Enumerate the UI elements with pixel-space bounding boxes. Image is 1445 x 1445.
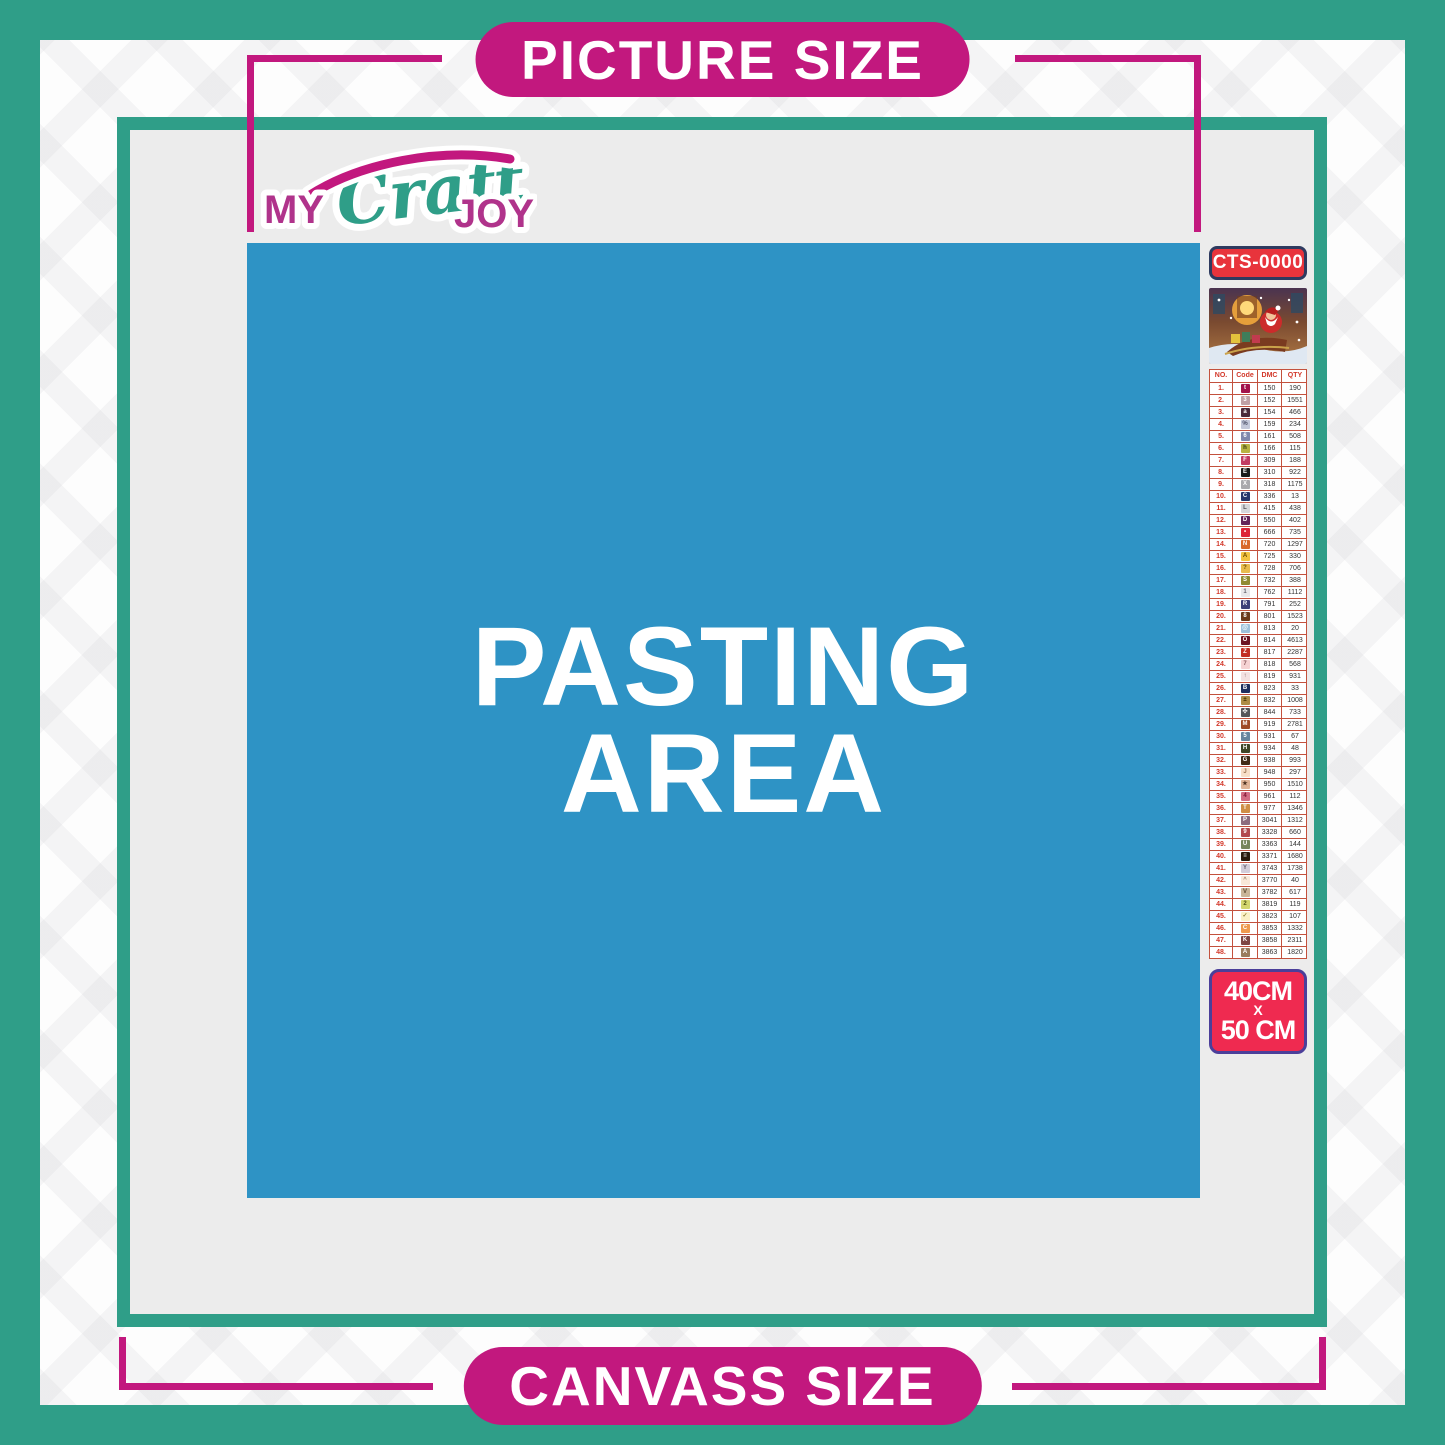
table-row: 24.7818568 (1210, 659, 1306, 671)
header-cell: NO. (1210, 370, 1233, 382)
color-swatch: 5 (1241, 732, 1250, 741)
cell-dmc: 150 (1258, 383, 1282, 394)
cell-qty: 2287 (1282, 647, 1308, 658)
cell-no: 36. (1210, 803, 1233, 814)
color-swatch: ✓ (1241, 912, 1250, 921)
table-row: 40.≡33711680 (1210, 851, 1306, 863)
cell-code: Z (1233, 647, 1258, 658)
picture-size-bracket-left (247, 55, 254, 232)
cell-dmc: 415 (1258, 503, 1282, 514)
cell-code: V (1233, 887, 1258, 898)
cell-code: h (1233, 443, 1258, 454)
table-row: 29.M9192781 (1210, 719, 1306, 731)
cell-qty: 330 (1282, 551, 1308, 562)
cell-dmc: 3853 (1258, 923, 1282, 934)
table-row: 27.±8321008 (1210, 695, 1306, 707)
cell-no: 1. (1210, 383, 1233, 394)
table-row: 14.N7201297 (1210, 539, 1306, 551)
pasting-area-label: PASTING AREA (472, 614, 976, 827)
cell-no: 12. (1210, 515, 1233, 526)
canvass-size-bracket-dash-left (119, 1383, 433, 1390)
cell-no: 9. (1210, 479, 1233, 490)
color-swatch: J (1241, 768, 1250, 777)
cell-code: E (1233, 467, 1258, 478)
color-swatch: 9 (1241, 828, 1250, 837)
color-swatch: C (1241, 492, 1250, 501)
color-swatch: a (1241, 408, 1250, 417)
cell-no: 3. (1210, 407, 1233, 418)
cell-code: a (1233, 407, 1258, 418)
color-swatch: L (1241, 504, 1250, 513)
logo-word-joy: JOY (454, 192, 534, 236)
cell-dmc: 550 (1258, 515, 1282, 526)
table-row: 21.@81320 (1210, 623, 1306, 635)
color-swatch: 2 (1241, 900, 1250, 909)
cell-qty: 660 (1282, 827, 1308, 838)
color-swatch: B (1241, 684, 1250, 693)
table-row: 8.E310922 (1210, 467, 1306, 479)
cell-qty: 48 (1282, 743, 1308, 754)
cell-no: 27. (1210, 695, 1233, 706)
table-row: 16.?728706 (1210, 563, 1306, 575)
color-swatch: E (1241, 468, 1250, 477)
cell-dmc: 720 (1258, 539, 1282, 550)
cell-no: 16. (1210, 563, 1233, 574)
table-row: 42.^377040 (1210, 875, 1306, 887)
cell-qty: 1112 (1282, 587, 1308, 598)
cell-dmc: 309 (1258, 455, 1282, 466)
cell-code: 9 (1233, 827, 1258, 838)
cell-code: J (1233, 767, 1258, 778)
cell-no: 46. (1210, 923, 1233, 934)
cell-dmc: 318 (1258, 479, 1282, 490)
color-swatch: V (1241, 888, 1250, 897)
cell-no: 33. (1210, 767, 1233, 778)
table-row: 20.88011523 (1210, 611, 1306, 623)
color-swatch: 7 (1241, 660, 1250, 669)
table-row: 2.31521551 (1210, 395, 1306, 407)
cell-code: H (1233, 743, 1258, 754)
cell-dmc: 3363 (1258, 839, 1282, 850)
cell-code: A (1233, 551, 1258, 562)
picture-size-bracket-dash-right (1015, 55, 1201, 62)
cell-dmc: 166 (1258, 443, 1282, 454)
cell-code: 4 (1233, 791, 1258, 802)
cell-qty: 107 (1282, 911, 1308, 922)
cell-qty: 1523 (1282, 611, 1308, 622)
cell-no: 4. (1210, 419, 1233, 430)
cell-qty: 1346 (1282, 803, 1308, 814)
color-swatch: S (1241, 576, 1250, 585)
cell-qty: 115 (1282, 443, 1308, 454)
cell-code: L (1233, 503, 1258, 514)
table-row: 25.↑819931 (1210, 671, 1306, 683)
table-row: 32.G938993 (1210, 755, 1306, 767)
cell-code: F (1233, 455, 1258, 466)
table-row: 47.K38582311 (1210, 935, 1306, 947)
cell-code: 6 (1233, 431, 1258, 442)
cell-code: A (1233, 947, 1258, 958)
cell-qty: 2311 (1282, 935, 1308, 946)
cell-no: 43. (1210, 887, 1233, 898)
cell-dmc: 938 (1258, 755, 1282, 766)
cell-dmc: 159 (1258, 419, 1282, 430)
cell-code: G (1233, 755, 1258, 766)
cell-dmc: 791 (1258, 599, 1282, 610)
cell-dmc: 931 (1258, 731, 1282, 742)
cell-dmc: 950 (1258, 779, 1282, 790)
cell-qty: 1175 (1282, 479, 1308, 490)
cell-dmc: 336 (1258, 491, 1282, 502)
cell-no: 25. (1210, 671, 1233, 682)
cell-code: ✓ (1233, 911, 1258, 922)
table-row: 31.H93448 (1210, 743, 1306, 755)
cell-dmc: 3858 (1258, 935, 1282, 946)
cell-no: 8. (1210, 467, 1233, 478)
color-swatch: F (1241, 456, 1250, 465)
cell-no: 42. (1210, 875, 1233, 886)
color-swatch: P (1241, 816, 1250, 825)
cell-no: 13. (1210, 527, 1233, 538)
color-swatch: M (1241, 720, 1250, 729)
cell-qty: 466 (1282, 407, 1308, 418)
cell-code: O (1233, 635, 1258, 646)
cell-code: U (1233, 839, 1258, 850)
cell-qty: 993 (1282, 755, 1308, 766)
canvass-size-text: CANVASS SIZE (509, 1354, 935, 1418)
cell-qty: 252 (1282, 599, 1308, 610)
cell-no: 7. (1210, 455, 1233, 466)
size-height: 50 CM (1212, 1017, 1304, 1043)
table-row: 41.Y37431738 (1210, 863, 1306, 875)
cell-no: 30. (1210, 731, 1233, 742)
cell-no: 44. (1210, 899, 1233, 910)
cell-qty: 297 (1282, 767, 1308, 778)
table-row: 13.•666735 (1210, 527, 1306, 539)
color-swatch: G (1241, 756, 1250, 765)
cell-qty: 735 (1282, 527, 1308, 538)
color-swatch: D (1241, 516, 1250, 525)
cell-dmc: 3041 (1258, 815, 1282, 826)
cell-dmc: 823 (1258, 683, 1282, 694)
cell-dmc: 3770 (1258, 875, 1282, 886)
cell-dmc: 3743 (1258, 863, 1282, 874)
color-swatch: % (1241, 420, 1250, 429)
cell-dmc: 161 (1258, 431, 1282, 442)
color-swatch: 4 (1241, 792, 1250, 801)
table-row: 6.h166115 (1210, 443, 1306, 455)
color-swatch: ★ (1241, 780, 1250, 789)
cell-no: 48. (1210, 947, 1233, 958)
cell-no: 11. (1210, 503, 1233, 514)
color-swatch: 6 (1241, 432, 1250, 441)
cell-no: 39. (1210, 839, 1233, 850)
cell-qty: 706 (1282, 563, 1308, 574)
cell-no: 45. (1210, 911, 1233, 922)
color-swatch: O (1241, 636, 1250, 645)
cell-no: 26. (1210, 683, 1233, 694)
cell-no: 35. (1210, 791, 1233, 802)
cell-dmc: 3328 (1258, 827, 1282, 838)
table-row: 34.★9501510 (1210, 779, 1306, 791)
cell-dmc: 961 (1258, 791, 1282, 802)
cell-qty: 144 (1282, 839, 1308, 850)
cell-code: @ (1233, 623, 1258, 634)
cell-dmc: 310 (1258, 467, 1282, 478)
cell-qty: 1551 (1282, 395, 1308, 406)
cell-qty: 234 (1282, 419, 1308, 430)
color-swatch: R (1241, 600, 1250, 609)
cell-code: ↑ (1233, 671, 1258, 682)
cell-dmc: 154 (1258, 407, 1282, 418)
cell-no: 15. (1210, 551, 1233, 562)
cell-code: K (1233, 935, 1258, 946)
cell-qty: 1332 (1282, 923, 1308, 934)
table-row: 48.A38631820 (1210, 947, 1306, 958)
cell-code: 5 (1233, 731, 1258, 742)
table-row: 10.C33613 (1210, 491, 1306, 503)
cell-code: ★ (1233, 779, 1258, 790)
cell-qty: 1738 (1282, 863, 1308, 874)
color-swatch: Z (1241, 648, 1250, 657)
table-row: 23.Z8172287 (1210, 647, 1306, 659)
cell-qty: 40 (1282, 875, 1308, 886)
cell-no: 21. (1210, 623, 1233, 634)
canvass-size-bracket-dash-right (1012, 1383, 1326, 1390)
cell-qty: 568 (1282, 659, 1308, 670)
legend-column: CTS-0000 NO.CodeDMCQTY 1.t1501902.315215… (1209, 246, 1309, 1054)
canvass-size-label: CANVASS SIZE (463, 1347, 981, 1425)
cell-qty: 508 (1282, 431, 1308, 442)
cell-code: B (1233, 683, 1258, 694)
cell-qty: 1312 (1282, 815, 1308, 826)
cell-code: T (1233, 803, 1258, 814)
cell-code: t (1233, 383, 1258, 394)
cell-code: D (1233, 515, 1258, 526)
table-row: 36.T9771346 (1210, 803, 1306, 815)
cell-dmc: 762 (1258, 587, 1282, 598)
cell-qty: 388 (1282, 575, 1308, 586)
cell-no: 17. (1210, 575, 1233, 586)
table-row: 4.%159234 (1210, 419, 1306, 431)
cell-no: 32. (1210, 755, 1233, 766)
cell-no: 2. (1210, 395, 1233, 406)
picture-size-text: PICTURE SIZE (521, 28, 924, 92)
table-row: 1.t150190 (1210, 383, 1306, 395)
cell-code: R (1233, 599, 1258, 610)
color-swatch: ? (1241, 564, 1250, 573)
legend-table-header: NO.CodeDMCQTY (1210, 370, 1306, 383)
cell-code: • (1233, 527, 1258, 538)
color-swatch: 1 (1241, 588, 1250, 597)
sku-text: CTS-0000 (1213, 252, 1304, 274)
header-cell: QTY (1282, 370, 1308, 382)
cell-code: X (1233, 479, 1258, 490)
cell-dmc: 728 (1258, 563, 1282, 574)
cell-qty: 1510 (1282, 779, 1308, 790)
table-row: 43.V3782617 (1210, 887, 1306, 899)
pasting-line-1: PASTING (472, 614, 976, 720)
color-swatch: U (1241, 840, 1250, 849)
color-swatch: 8 (1241, 612, 1250, 621)
cell-qty: 1820 (1282, 947, 1308, 958)
color-swatch: ± (1241, 696, 1250, 705)
cell-no: 47. (1210, 935, 1233, 946)
color-key-table: NO.CodeDMCQTY 1.t1501902.315215513.a1544… (1209, 369, 1307, 959)
cell-qty: 733 (1282, 707, 1308, 718)
diamond-painting-canvas-guide: { "banner": { "top_label": "PICTURE SIZE… (0, 0, 1445, 1445)
color-swatch: t (1241, 384, 1250, 393)
color-swatch: ≡ (1241, 852, 1250, 861)
table-row: 15.A725330 (1210, 551, 1306, 563)
color-swatch: A (1241, 948, 1250, 957)
cell-dmc: 3782 (1258, 887, 1282, 898)
size-badge: 40CM X 50 CM (1209, 969, 1307, 1054)
cell-code: Y (1233, 863, 1258, 874)
cell-qty: 190 (1282, 383, 1308, 394)
cell-qty: 20 (1282, 623, 1308, 634)
color-swatch: K (1241, 936, 1250, 945)
cell-code: ≡ (1233, 851, 1258, 862)
cell-code: M (1233, 719, 1258, 730)
cell-dmc: 844 (1258, 707, 1282, 718)
cell-qty: 2781 (1282, 719, 1308, 730)
cell-code: C (1233, 923, 1258, 934)
cell-no: 14. (1210, 539, 1233, 550)
table-row: 44.23819119 (1210, 899, 1306, 911)
cell-no: 29. (1210, 719, 1233, 730)
cell-dmc: 801 (1258, 611, 1282, 622)
cell-qty: 1680 (1282, 851, 1308, 862)
table-row: 26.B82333 (1210, 683, 1306, 695)
cell-dmc: 948 (1258, 767, 1282, 778)
cell-qty: 4613 (1282, 635, 1308, 646)
table-row: 19.R791252 (1210, 599, 1306, 611)
cell-no: 10. (1210, 491, 1233, 502)
cell-no: 28. (1210, 707, 1233, 718)
cell-code: ? (1233, 563, 1258, 574)
sku-badge: CTS-0000 (1209, 246, 1307, 280)
cell-qty: 119 (1282, 899, 1308, 910)
color-swatch: H (1241, 744, 1250, 753)
cell-no: 40. (1210, 851, 1233, 862)
table-row: 33.J948297 (1210, 767, 1306, 779)
cell-qty: 67 (1282, 731, 1308, 742)
cell-qty: 1008 (1282, 695, 1308, 706)
cell-dmc: 813 (1258, 623, 1282, 634)
cell-dmc: 3371 (1258, 851, 1282, 862)
table-row: 11.L415438 (1210, 503, 1306, 515)
header-cell: Code (1233, 370, 1258, 382)
cell-dmc: 934 (1258, 743, 1282, 754)
cell-code: 1 (1233, 587, 1258, 598)
table-row: 46.C38531332 (1210, 923, 1306, 935)
color-swatch: Y (1241, 864, 1250, 873)
cell-qty: 617 (1282, 887, 1308, 898)
cell-no: 31. (1210, 743, 1233, 754)
logo-word-my: MY (264, 188, 324, 232)
cell-dmc: 832 (1258, 695, 1282, 706)
cell-qty: 13 (1282, 491, 1308, 502)
cell-dmc: 3863 (1258, 947, 1282, 958)
cell-code: 7 (1233, 659, 1258, 670)
santa-sleigh-preview-icon (1209, 288, 1307, 364)
cell-no: 23. (1210, 647, 1233, 658)
cell-qty: 922 (1282, 467, 1308, 478)
cell-no: 34. (1210, 779, 1233, 790)
cell-qty: 33 (1282, 683, 1308, 694)
cell-qty: 188 (1282, 455, 1308, 466)
picture-size-bracket-dash-left (250, 55, 442, 62)
cell-no: 41. (1210, 863, 1233, 874)
color-swatch: X (1241, 480, 1250, 489)
cell-dmc: 666 (1258, 527, 1282, 538)
header-cell: DMC (1258, 370, 1282, 382)
cell-dmc: 3819 (1258, 899, 1282, 910)
cell-code: P (1233, 815, 1258, 826)
color-swatch: • (1241, 528, 1250, 537)
cell-dmc: 3823 (1258, 911, 1282, 922)
cell-dmc: 725 (1258, 551, 1282, 562)
color-swatch: ✣ (1241, 708, 1250, 717)
pasting-area: PASTING AREA (247, 243, 1200, 1198)
table-row: 9.X3181175 (1210, 479, 1306, 491)
color-swatch: @ (1241, 624, 1250, 633)
cell-qty: 1297 (1282, 539, 1308, 550)
table-row: 17.S732388 (1210, 575, 1306, 587)
table-row: 12.D550402 (1210, 515, 1306, 527)
color-swatch: C (1241, 924, 1250, 933)
cell-code: ± (1233, 695, 1258, 706)
cell-dmc: 817 (1258, 647, 1282, 658)
color-swatch: ↑ (1241, 672, 1250, 681)
cell-code: ^ (1233, 875, 1258, 886)
cell-no: 18. (1210, 587, 1233, 598)
cell-dmc: 977 (1258, 803, 1282, 814)
cell-code: 2 (1233, 899, 1258, 910)
cell-no: 5. (1210, 431, 1233, 442)
cell-no: 38. (1210, 827, 1233, 838)
cell-qty: 402 (1282, 515, 1308, 526)
picture-size-label: PICTURE SIZE (475, 22, 970, 97)
table-row: 35.4961112 (1210, 791, 1306, 803)
table-row: 3.a154466 (1210, 407, 1306, 419)
table-row: 28.✣844733 (1210, 707, 1306, 719)
cell-code: % (1233, 419, 1258, 430)
table-row: 45.✓3823107 (1210, 911, 1306, 923)
pasting-line-2: AREA (472, 721, 976, 827)
color-swatch: A (1241, 552, 1250, 561)
cell-qty: 931 (1282, 671, 1308, 682)
cell-code: ✣ (1233, 707, 1258, 718)
table-row: 18.17621112 (1210, 587, 1306, 599)
cell-qty: 438 (1282, 503, 1308, 514)
table-row: 30.593167 (1210, 731, 1306, 743)
cell-qty: 112 (1282, 791, 1308, 802)
brand-logo: Craft MY JOY (252, 133, 537, 246)
cell-no: 20. (1210, 611, 1233, 622)
my-craft-joy-logo-icon: Craft MY JOY (252, 133, 537, 241)
cell-code: 3 (1233, 395, 1258, 406)
cell-no: 6. (1210, 443, 1233, 454)
cell-dmc: 819 (1258, 671, 1282, 682)
table-row: 39.U3363144 (1210, 839, 1306, 851)
cell-dmc: 732 (1258, 575, 1282, 586)
cell-no: 19. (1210, 599, 1233, 610)
color-swatch: T (1241, 804, 1250, 813)
cell-dmc: 152 (1258, 395, 1282, 406)
legend-table-body: 1.t1501902.315215513.a1544664.%1592345.6… (1210, 383, 1306, 958)
